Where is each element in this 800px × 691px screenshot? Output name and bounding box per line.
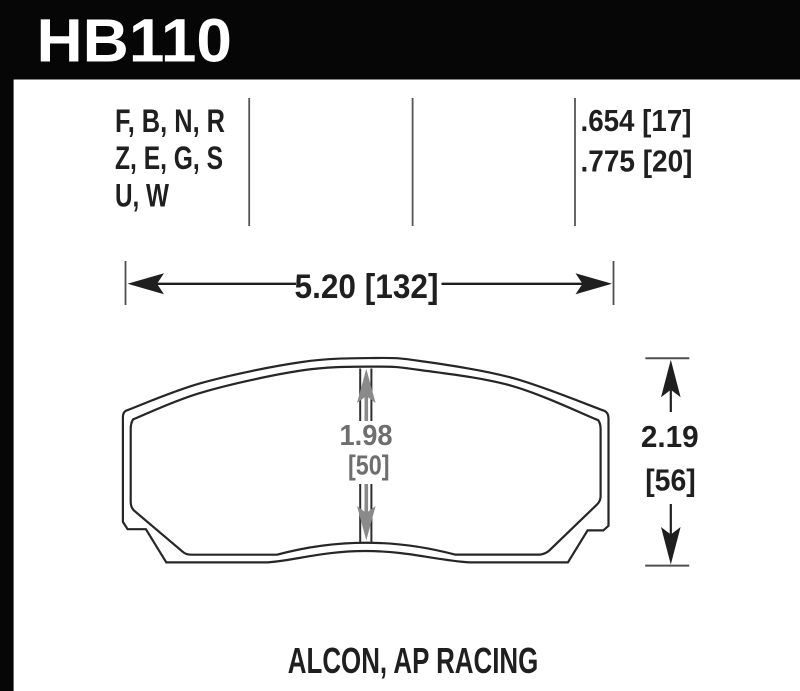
svg-text:[50]: [50] (348, 450, 390, 481)
svg-text:.654 [17]: .654 [17] (581, 103, 692, 138)
svg-text:ALCON, AP RACING: ALCON, AP RACING (288, 640, 539, 681)
svg-text:1.98: 1.98 (340, 420, 393, 452)
svg-text:HB110: HB110 (37, 6, 232, 75)
svg-text:.775 [20]: .775 [20] (581, 144, 693, 179)
svg-text:Z, E, G, S: Z, E, G, S (115, 140, 223, 176)
svg-text:2.19: 2.19 (641, 419, 699, 454)
svg-text:U, W: U, W (115, 177, 170, 213)
svg-text:[56]: [56] (645, 462, 696, 497)
svg-text:5.20 [132]: 5.20 [132] (295, 268, 439, 306)
svg-text:F, B, N, R: F, B, N, R (115, 103, 225, 139)
